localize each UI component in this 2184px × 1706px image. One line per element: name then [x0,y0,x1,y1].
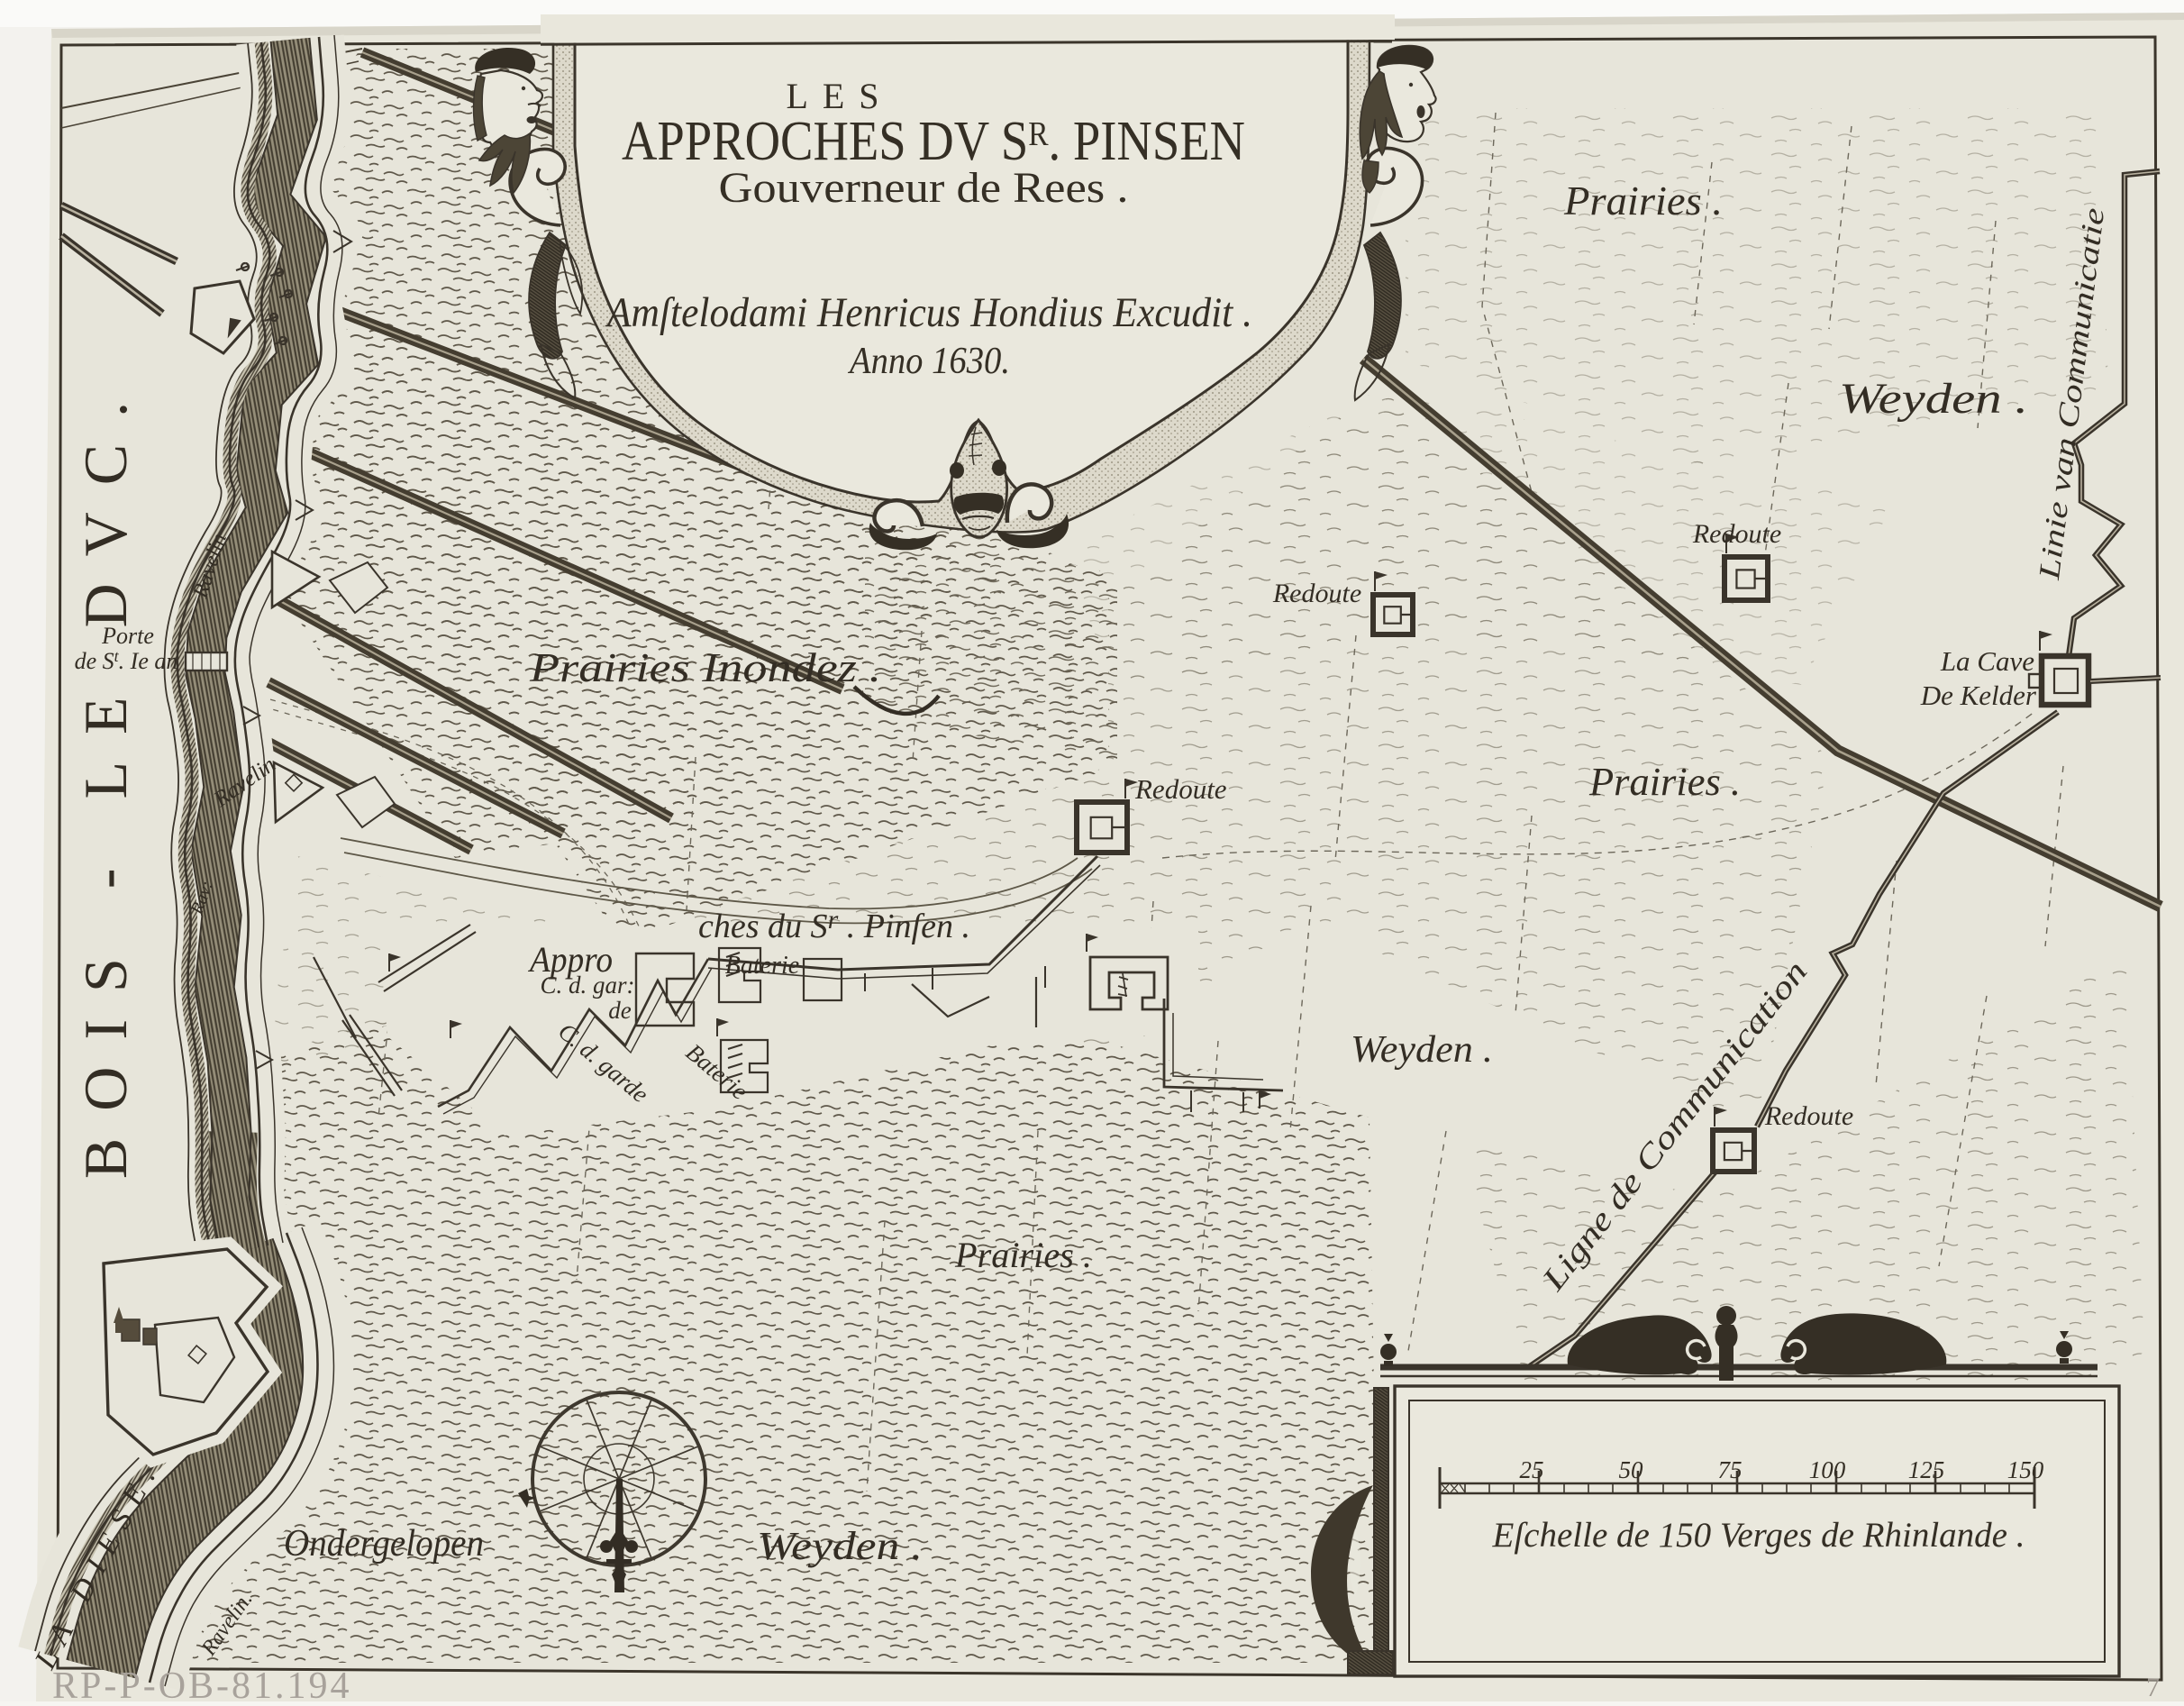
svg-text:50: 50 [1619,1456,1644,1483]
svg-text:De Kelder: De Kelder [1920,680,2037,711]
svg-text:125: 125 [1908,1456,1945,1483]
svg-text:25: 25 [1520,1456,1544,1483]
svg-text:Redoute: Redoute [1134,773,1227,805]
svg-text:Redoute: Redoute [1692,519,1781,549]
svg-text:Prairies .: Prairies . [1588,760,1741,804]
svg-text:Prairies Inondez .: Prairies Inondez . [529,644,881,690]
svg-text:Amſtelodami Henricus Hondius E: Amſtelodami Henricus Hondius Excudit . [605,289,1252,336]
svg-text:Prairies .: Prairies . [1563,178,1723,224]
svg-text:7: 7 [2146,1673,2160,1701]
svg-text:Redoute: Redoute [1272,579,1361,608]
svg-text:RP-P-OB-81.194: RP-P-OB-81.194 [52,1665,352,1701]
svg-text:Ondergelopen: Ondergelopen [284,1523,484,1565]
svg-text:de: de [608,997,632,1024]
svg-text:Prairies .: Prairies . [954,1235,1092,1275]
svg-text:Weyden .: Weyden . [757,1524,923,1568]
svg-text:Gouverneur de Rees .: Gouverneur de Rees . [719,164,1129,212]
svg-text:C. d. gar:: C. d. gar: [540,972,634,999]
svg-text:Anno 1630.: Anno 1630. [847,341,1010,382]
svg-text:100: 100 [1809,1456,1846,1483]
svg-text:Weyden .: Weyden . [1839,375,2028,423]
svg-text:Weyden .: Weyden . [1351,1029,1493,1071]
svg-text:Eſchelle de 150 Verges de Rhin: Eſchelle de 150 Verges de Rhinlande . [1492,1516,2025,1555]
svg-text:75: 75 [1718,1456,1743,1483]
svg-text:Redoute: Redoute [1764,1101,1853,1131]
svg-text:Baterie: Baterie [725,952,799,980]
svg-text:BOIS - LE DVC.: BOIS - LE DVC. [71,375,140,1179]
svg-text:150: 150 [2007,1456,2044,1483]
svg-text:APPROCHES DV SR. PINSEN: APPROCHES DV SR. PINSEN [622,111,1245,172]
svg-text:La Cave: La Cave [1940,645,2034,677]
